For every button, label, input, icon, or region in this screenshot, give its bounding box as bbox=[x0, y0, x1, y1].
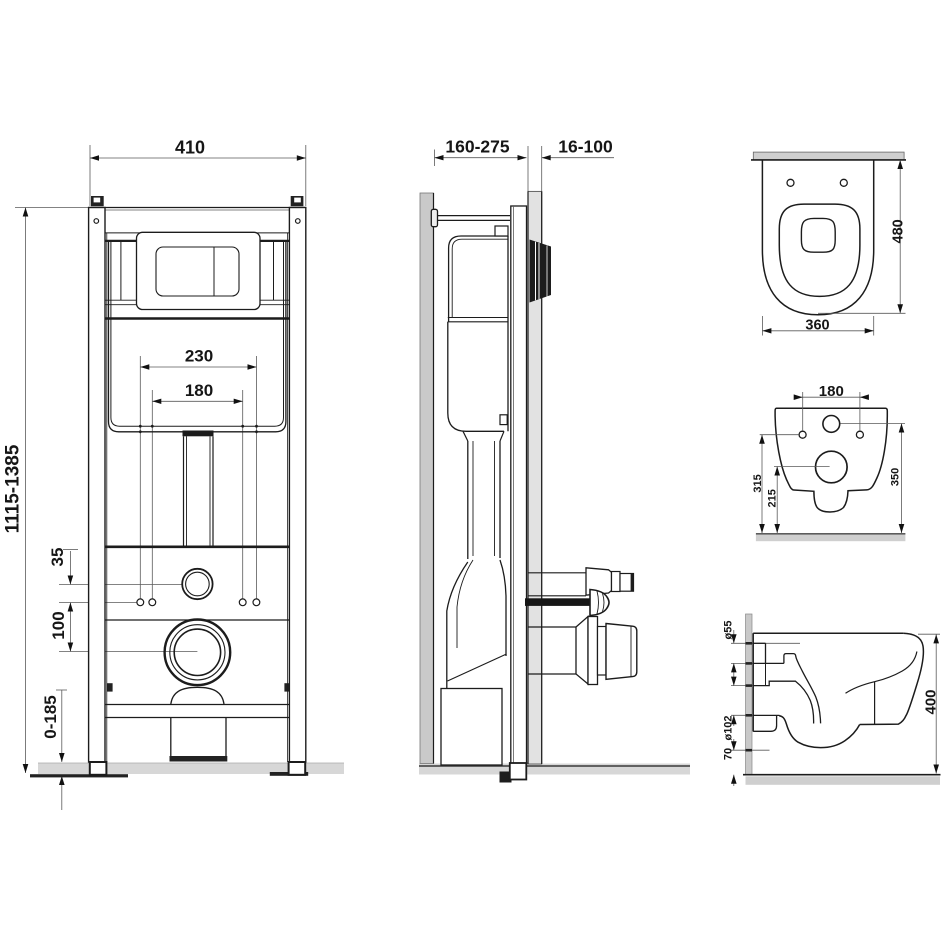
svg-text:410: 410 bbox=[175, 138, 205, 158]
svg-text:0-185: 0-185 bbox=[41, 695, 60, 738]
svg-text:ø102: ø102 bbox=[723, 715, 735, 740]
svg-text:70: 70 bbox=[723, 748, 735, 760]
svg-text:35: 35 bbox=[48, 548, 67, 567]
svg-text:215: 215 bbox=[767, 489, 779, 507]
svg-text:180: 180 bbox=[185, 381, 213, 400]
svg-text:16-100: 16-100 bbox=[558, 137, 613, 157]
svg-text:360: 360 bbox=[805, 318, 829, 334]
svg-text:1115-1385: 1115-1385 bbox=[3, 444, 24, 533]
svg-text:350: 350 bbox=[890, 468, 902, 486]
svg-text:180: 180 bbox=[819, 383, 844, 400]
svg-text:160-275: 160-275 bbox=[445, 137, 509, 157]
svg-text:ø55: ø55 bbox=[723, 621, 735, 640]
svg-text:230: 230 bbox=[185, 347, 213, 366]
svg-text:400: 400 bbox=[923, 689, 940, 714]
svg-text:315: 315 bbox=[752, 474, 764, 492]
svg-text:100: 100 bbox=[49, 611, 68, 639]
svg-text:480: 480 bbox=[891, 219, 907, 243]
